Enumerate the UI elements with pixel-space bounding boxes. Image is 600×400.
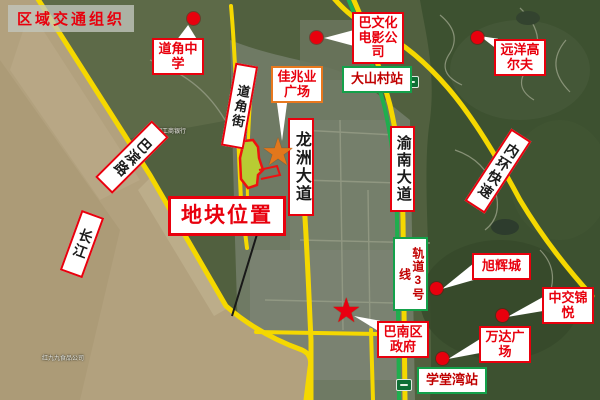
poi-dot-film-company	[310, 31, 323, 44]
label-xuetangwan-station: 学堂湾站	[417, 367, 487, 394]
poi-dot-daojiao-school	[187, 12, 200, 25]
label-daojiao-school: 道角中学	[152, 38, 204, 75]
label-xuhui-city: 旭辉城	[472, 253, 531, 280]
label-wanda-plaza: 万达广场	[479, 326, 531, 363]
label-yunan-avenue: 渝南大道	[390, 126, 415, 212]
poi-dot-golf	[471, 31, 484, 44]
label-yuanyang-golf: 远洋高尔夫	[494, 39, 546, 76]
label-jiazhaoye-plaza: 佳兆业广场	[271, 66, 323, 103]
label-banan-government: 巴南区政府	[377, 321, 429, 358]
label-ba-culture-film: 巴文化电影公司	[352, 12, 404, 64]
map-title: 区域交通组织	[8, 5, 134, 32]
label-longzhou-avenue: 龙洲大道	[288, 118, 314, 216]
label-dashancun-station: 大山村站	[342, 66, 412, 93]
label-plot-location: 地块位置	[168, 196, 286, 236]
label-rail-line3: 轨道3号线	[393, 237, 428, 311]
satellite-map-canvas[interactable]: 区域交通组织 中国工商银行 红九九食品公司 ★ ★ 道角中学 巴文化电影公司 远…	[0, 0, 600, 400]
bg-label: 红九九食品公司	[42, 356, 84, 362]
poi-dot-jinyue	[496, 309, 509, 322]
poi-dot-xuhui-city	[430, 282, 443, 295]
poi-dot-wanda	[436, 352, 449, 365]
label-zhongjiao-jinyue: 中交锦悦	[542, 287, 594, 324]
road-shield-badge	[396, 379, 412, 391]
